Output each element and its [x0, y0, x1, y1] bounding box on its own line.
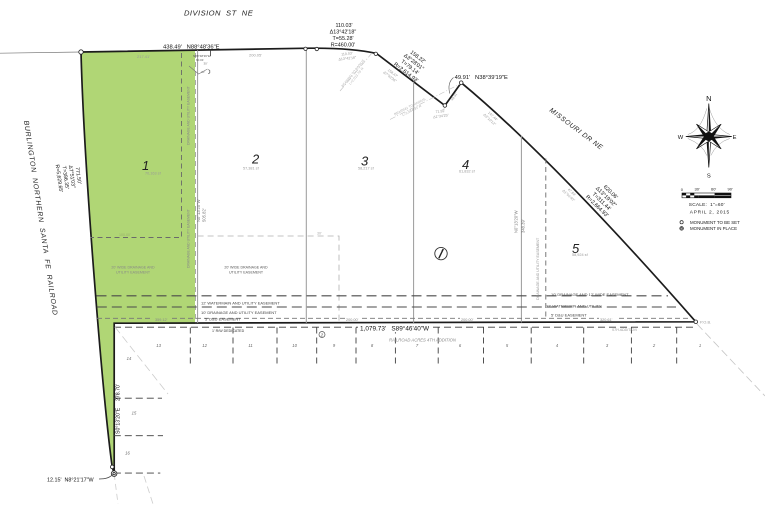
svg-text:N: N	[706, 94, 711, 103]
svg-text:1: 1	[699, 343, 701, 348]
svg-text:DIVISION ST NE: DIVISION ST NE	[184, 9, 254, 18]
svg-text:11: 11	[248, 343, 252, 348]
svg-text:RAILROAD ACRES 4TH ADDITION: RAILROAD ACRES 4TH ADDITION	[389, 338, 457, 343]
svg-text:10' DRAINAGE AND 12' WIDE EASE: 10' DRAINAGE AND 12' WIDE EASEMENT	[551, 292, 629, 297]
svg-text:16: 16	[125, 451, 130, 456]
svg-text:90': 90'	[728, 187, 733, 192]
svg-text:W: W	[678, 135, 684, 141]
svg-text:MONUMENT IN PLACE: MONUMENT IN PLACE	[690, 226, 737, 231]
svg-text:200.00': 200.00'	[346, 318, 359, 322]
svg-text:57,381 sf: 57,381 sf	[243, 167, 260, 171]
svg-text:MONUMENT TO BE SET: MONUMENT TO BE SET	[690, 220, 740, 225]
svg-text:5' D&U EASEMENT: 5' D&U EASEMENT	[551, 313, 587, 318]
svg-text:30': 30'	[317, 232, 322, 236]
svg-text:Δ13°42'18": Δ13°42'18"	[330, 30, 357, 36]
svg-text:20' WIDE DRAINAGE AND: 20' WIDE DRAINAGE AND	[224, 266, 268, 270]
svg-text:12' WATERMAIN AND UTILITY: 12' WATERMAIN AND UTILITY	[546, 304, 602, 309]
svg-text:SCALE: 1"=60': SCALE: 1"=60'	[689, 202, 725, 208]
svg-text:S0°13'20"E: S0°13'20"E	[116, 407, 122, 434]
svg-text:DRAINAGE AND UTILITY EASEMENT: DRAINAGE AND UTILITY EASEMENT	[536, 237, 540, 300]
svg-text:10' DRAINAGE AND UTILITY EASEM: 10' DRAINAGE AND UTILITY EASEMENT	[201, 310, 277, 315]
svg-text:N0°13'20"W: N0°13'20"W	[196, 199, 201, 222]
svg-text:20' WIDE DRAINAGE AND: 20' WIDE DRAINAGE AND	[111, 266, 155, 270]
svg-text:278.70': 278.70'	[116, 384, 122, 401]
svg-text:217.41': 217.41'	[137, 54, 150, 59]
svg-text:10: 10	[292, 343, 297, 348]
svg-text:12' WATERMAIN AND UTILITY EASE: 12' WATERMAIN AND UTILITY EASEMENT	[201, 301, 280, 306]
svg-text:E: E	[733, 135, 737, 141]
svg-text:348.39': 348.39'	[521, 219, 526, 233]
svg-text:30': 30'	[201, 70, 205, 74]
svg-text:5TH ADDITION: 5TH ADDITION	[612, 328, 637, 332]
svg-text:14: 14	[127, 356, 132, 361]
svg-text:359.12': 359.12'	[155, 318, 168, 322]
svg-text:S: S	[707, 174, 711, 180]
svg-text:UTILITY EASEMENT: UTILITY EASEMENT	[229, 270, 264, 274]
svg-text:2: 2	[320, 333, 324, 338]
svg-text:61,832 sf: 61,832 sf	[459, 170, 476, 174]
svg-text:58,217 sf: 58,217 sf	[358, 167, 375, 171]
svg-text:30': 30'	[695, 187, 700, 192]
svg-text:200.05': 200.05'	[249, 53, 262, 58]
svg-text:110.03': 110.03'	[335, 23, 352, 29]
svg-text:58,924 sf: 58,924 sf	[572, 253, 589, 257]
svg-text:15: 15	[132, 411, 137, 416]
svg-text:R=460.00': R=460.00'	[331, 42, 356, 48]
svg-text:T=55.28': T=55.28'	[333, 36, 354, 42]
svg-text:12: 12	[202, 343, 207, 348]
svg-text:100.00': 100.00'	[119, 233, 131, 237]
svg-text:DRAINAGE AND UTILITY EASEMENT: DRAINAGE AND UTILITY EASEMENT	[187, 86, 191, 145]
svg-text:N0°13'20"W: N0°13'20"W	[514, 210, 519, 233]
svg-text:1,079.73' S89°46'40"W: 1,079.73' S89°46'40"W	[360, 325, 430, 333]
svg-text:60': 60'	[711, 187, 716, 192]
svg-text:505.82': 505.82'	[202, 208, 207, 222]
svg-text:200.00': 200.00'	[461, 318, 474, 322]
svg-text:APRIL 2, 2015: APRIL 2, 2015	[690, 210, 730, 216]
svg-text:13: 13	[156, 343, 161, 348]
svg-text:UTILITY EASEMENT: UTILITY EASEMENT	[116, 270, 151, 274]
svg-text:DRAINAGE AND UTILITY EASEMENT: DRAINAGE AND UTILITY EASEMENT	[187, 209, 191, 268]
svg-text:2: 2	[251, 152, 260, 167]
svg-text:70,163 sf: 70,163 sf	[145, 172, 162, 176]
svg-text:320.61': 320.61'	[600, 318, 613, 322]
svg-text:5' D&U EASEMENT: 5' D&U EASEMENT	[205, 317, 241, 322]
svg-text:12.15' N8°21'17"W: 12.15' N8°21'17"W	[47, 477, 94, 483]
svg-text:49.91' N38°39'19"E: 49.91' N38°39'19"E	[455, 75, 508, 81]
svg-text:1' R/W DEDICATED: 1' R/W DEDICATED	[212, 329, 245, 333]
svg-text:438.49' N88°48'36"E: 438.49' N88°48'36"E	[163, 45, 220, 51]
svg-text:30': 30'	[204, 62, 208, 66]
svg-text:P.O.B.: P.O.B.	[700, 320, 711, 325]
